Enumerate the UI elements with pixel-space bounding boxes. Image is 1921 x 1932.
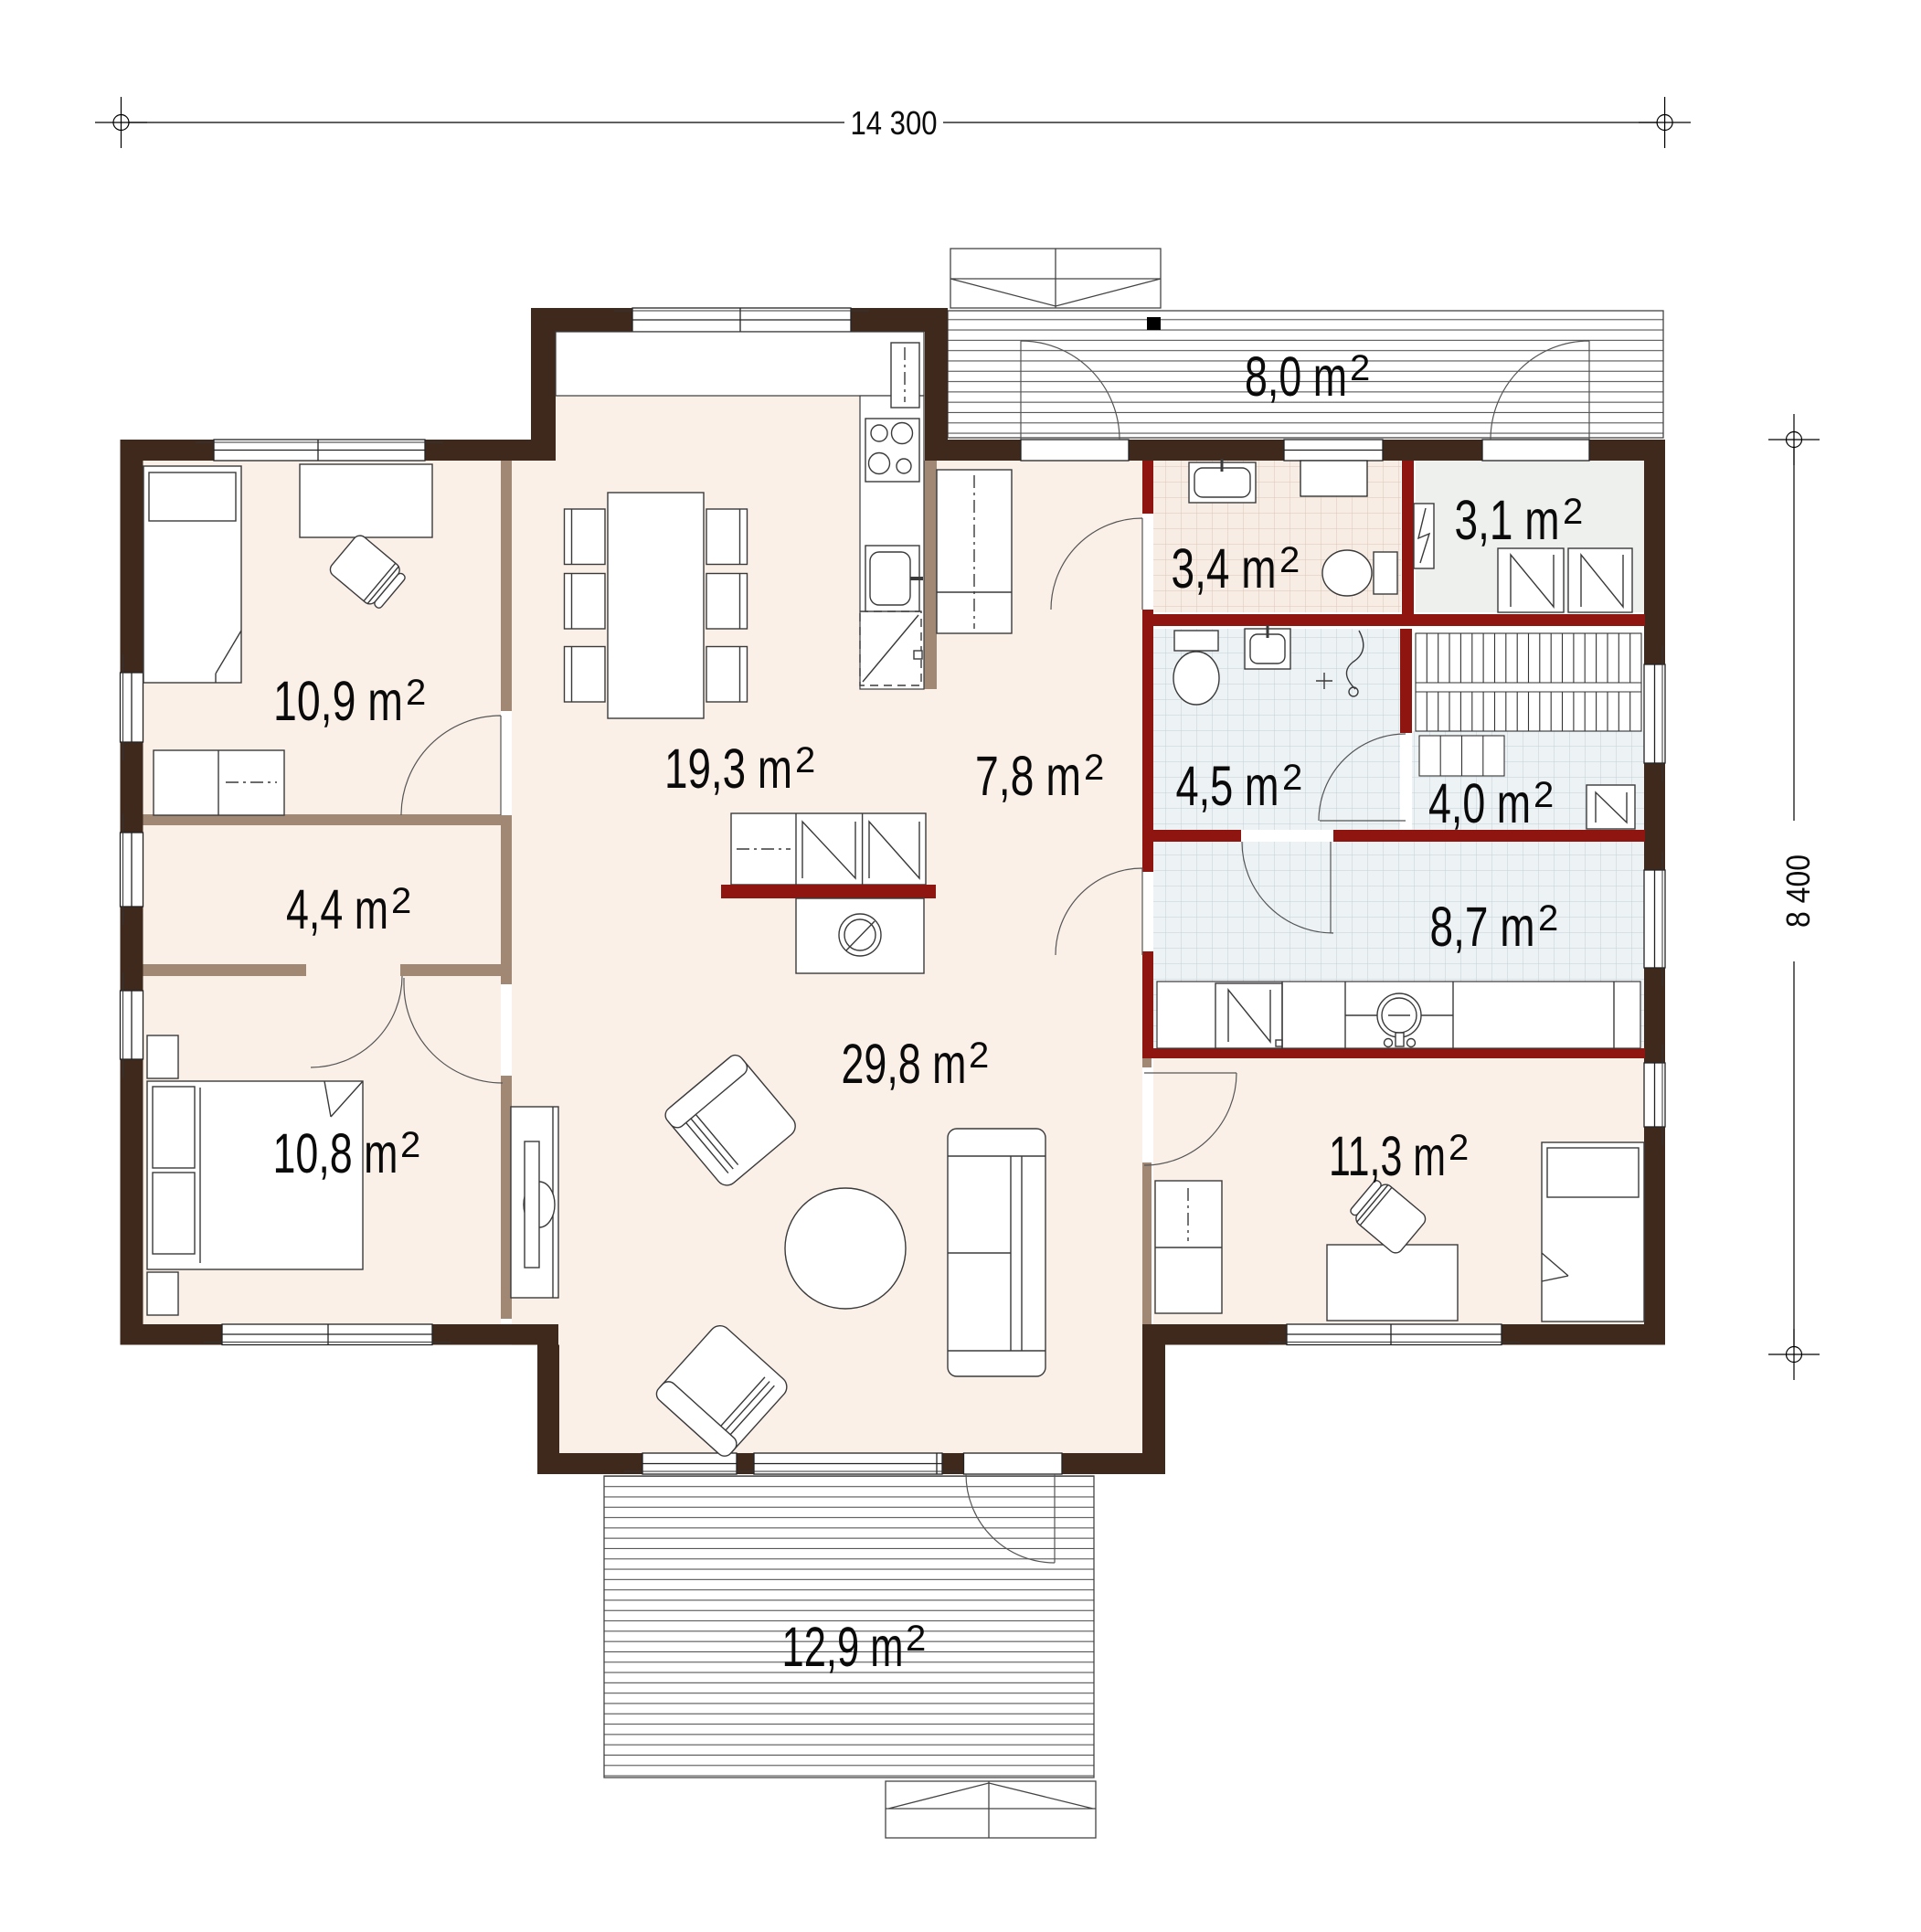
svg-text:8,7 m: 8,7 m [1430, 896, 1535, 958]
svg-text:2: 2 [406, 673, 426, 713]
svg-text:7,8 m: 7,8 m [975, 745, 1081, 807]
svg-text:2: 2 [1279, 540, 1300, 580]
svg-text:2: 2 [795, 740, 815, 780]
svg-text:2: 2 [1282, 758, 1302, 798]
svg-text:8 400: 8 400 [1779, 855, 1817, 928]
svg-text:11,3 m: 11,3 m [1329, 1125, 1446, 1187]
svg-text:14 300: 14 300 [851, 104, 938, 142]
svg-text:2: 2 [391, 881, 411, 921]
svg-text:12,9 m: 12,9 m [782, 1616, 904, 1678]
svg-text:2: 2 [400, 1125, 420, 1165]
svg-text:10,8 m: 10,8 m [273, 1122, 398, 1184]
svg-text:8,0 m: 8,0 m [1245, 345, 1347, 408]
svg-text:4,4 m: 4,4 m [286, 878, 388, 940]
svg-text:4,5 m: 4,5 m [1176, 755, 1279, 817]
svg-text:3,4 m: 3,4 m [1172, 537, 1277, 600]
svg-text:4,0 m: 4,0 m [1428, 772, 1531, 834]
svg-text:19,3 m: 19,3 m [664, 738, 792, 800]
svg-text:2: 2 [1538, 898, 1558, 939]
svg-text:10,9 m: 10,9 m [273, 670, 403, 732]
svg-text:2: 2 [1563, 492, 1583, 532]
svg-text:3,1 m: 3,1 m [1455, 489, 1560, 551]
svg-text:29,8 m: 29,8 m [842, 1033, 967, 1095]
svg-text:2: 2 [1084, 748, 1104, 788]
svg-text:2: 2 [906, 1619, 926, 1659]
svg-text:2: 2 [1449, 1128, 1469, 1168]
svg-text:2: 2 [969, 1035, 989, 1076]
svg-text:2: 2 [1350, 348, 1370, 388]
svg-text:2: 2 [1534, 775, 1554, 815]
